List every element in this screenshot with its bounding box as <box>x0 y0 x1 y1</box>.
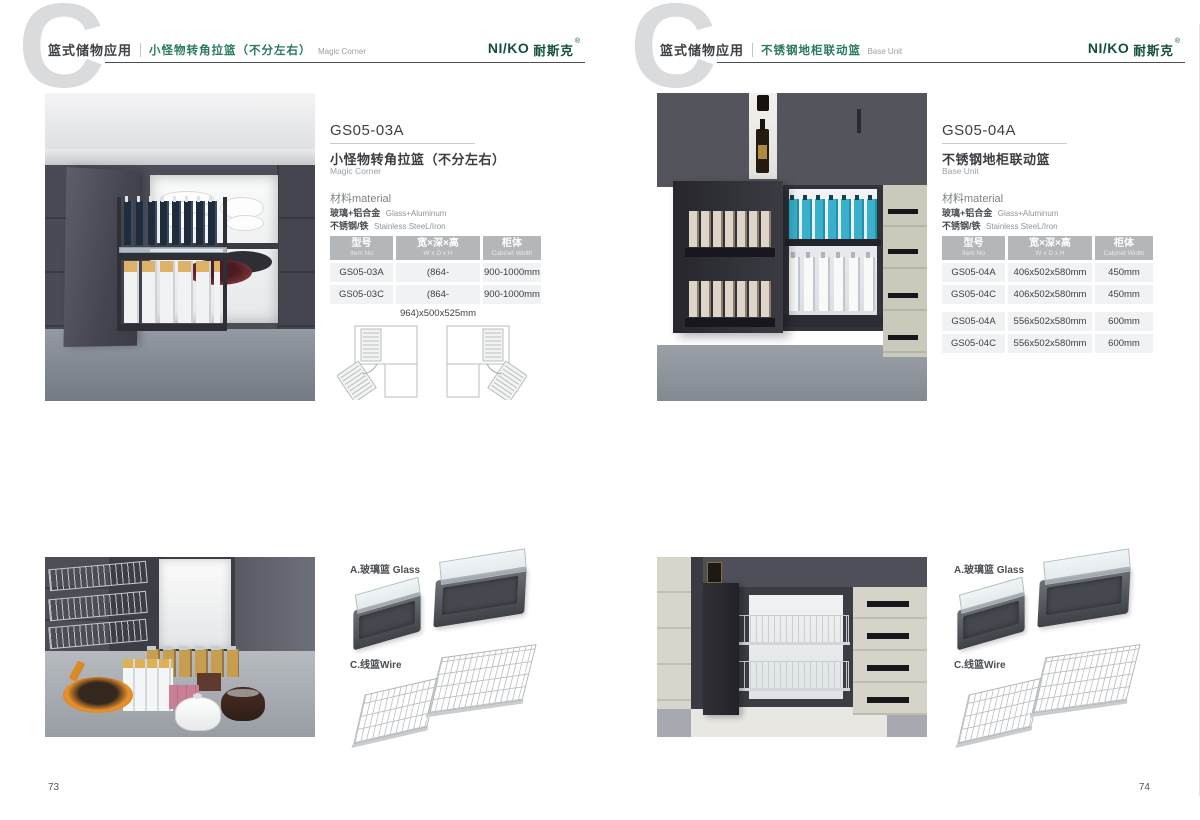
wire-basket-label: C.线篮Wire <box>954 656 1006 671</box>
right-drawer-stack <box>277 165 315 331</box>
package-row <box>689 211 771 247</box>
wire-basket-large <box>427 644 536 714</box>
header-rule <box>717 62 1185 63</box>
page-header: 篮式储物应用 小怪物转角拉篮（不分左右） Magic Corner <box>48 40 366 59</box>
drawer-handle <box>888 335 918 340</box>
spec-table-header: 型号 Item No 宽×深×高 W x D x H 柜体 Cabinet Wi… <box>942 236 1153 260</box>
basket-shelf <box>785 239 881 246</box>
product-code: GS05-04A <box>942 122 1016 139</box>
header-divider <box>752 43 753 57</box>
table-cell: 450mm <box>1095 263 1153 282</box>
kitchen-wall <box>45 93 315 151</box>
brand-logo-latin: NI/KO <box>1088 40 1129 56</box>
header-category: 篮式储物应用 <box>660 40 744 59</box>
table-cell: 600mm <box>1095 334 1153 353</box>
pullout-basket-unit <box>117 197 227 331</box>
col-header-item-no: 型号 Item No <box>330 236 393 260</box>
wire-basket-label: C.线篮Wire <box>350 656 402 671</box>
countertop <box>45 149 315 165</box>
carton-row <box>124 261 220 323</box>
wire-basket-small <box>353 678 439 745</box>
glass-basket-large <box>1037 566 1130 627</box>
open-cabinet-door <box>673 181 783 333</box>
saucer <box>226 215 264 231</box>
page-number: 73 <box>48 782 59 793</box>
corner-diagram-right <box>443 322 527 400</box>
stone-drawer-stack <box>883 185 927 357</box>
brand-plate <box>707 562 722 583</box>
registered-mark: ® <box>1175 38 1180 45</box>
spec-table: 型号 Item No 宽×深×高 W x D x H 柜体 Cabinet Wi… <box>942 236 1153 353</box>
material-cn: 不锈钢/铁 <box>330 221 369 231</box>
header-category: 篮式储物应用 <box>48 40 132 59</box>
basket-mid-rail <box>119 253 225 260</box>
stone-column <box>657 557 691 709</box>
table-cell: GS05-03A <box>330 263 393 282</box>
material-line: 玻璃+铝合金 Glass+Aluminum <box>330 206 446 219</box>
table-cell: 900-1000mm <box>483 285 541 304</box>
table-row: GS05-04C 406x502x580mm 450mm <box>942 285 1153 304</box>
catalog-page-left: C 篮式储物应用 小怪物转角拉篮（不分左右） Magic Corner NI/K… <box>0 0 600 820</box>
glass-basket-small <box>957 592 1024 651</box>
header-subtitle-en: Base Unit <box>867 47 902 56</box>
table-row: GS05-03C (864-964)x500x525mm 900-1000mm <box>330 285 541 304</box>
material-cn: 玻璃+铝合金 <box>942 208 992 218</box>
col-header-cabinet-width: 柜体 Cabinet Width <box>1095 236 1153 260</box>
header-subtitle: 小怪物转角拉篮（不分左右） Magic Corner <box>149 41 366 59</box>
col-header-cabinet-width: 柜体 Cabinet Width <box>483 236 541 260</box>
brand-logo-latin: NI/KO <box>488 40 529 56</box>
dark-column <box>691 557 703 709</box>
material-label: 材料material <box>330 190 391 206</box>
upper-cabinets <box>657 93 927 187</box>
product-name-en: Base Unit <box>942 166 979 176</box>
page-number: 74 <box>1139 782 1150 793</box>
table-cell: (864-964)x500x525mm <box>396 263 480 282</box>
black-jar <box>757 95 769 111</box>
product-code: GS05-03A <box>330 122 404 139</box>
table-cell: 406x502x580mm <box>1008 263 1092 282</box>
drawer-handle <box>867 665 909 671</box>
package-row <box>689 281 771 317</box>
door-rack <box>685 279 775 327</box>
brown-box <box>197 673 221 691</box>
product-code-underline <box>330 143 475 144</box>
bottle-row <box>124 201 220 245</box>
cabinet-handle <box>857 109 861 133</box>
material-en: Stainless SteeL/Iron <box>374 222 446 231</box>
material-cn: 不锈钢/铁 <box>942 221 981 231</box>
col-header-wdh: 宽×深×高 W x D x H <box>396 236 480 260</box>
col-header-wdh: 宽×深×高 W x D x H <box>1008 236 1092 260</box>
dark-pot <box>221 687 265 721</box>
drawer-handle <box>867 601 909 607</box>
table-row: GS05-04A 556x502x580mm 600mm <box>942 312 1153 331</box>
material-line: 不锈钢/铁 Stainless SteeL/Iron <box>942 219 1058 232</box>
open-cabinet-door <box>703 583 739 715</box>
header-subtitle-en: Magic Corner <box>318 47 366 56</box>
brand-logo-chinese: 耐斯克 <box>1133 40 1174 59</box>
basket-rail-right <box>223 197 227 331</box>
product-photo-base-unit <box>657 93 927 401</box>
table-cell: GS05-03C <box>330 285 393 304</box>
header-subtitle: 不锈钢地柜联动篮 Base Unit <box>761 41 902 59</box>
header-rule <box>105 62 585 63</box>
page-header: 篮式储物应用 不锈钢地柜联动篮 Base Unit <box>660 40 902 59</box>
table-cell: GS05-04C <box>942 334 1005 353</box>
clear-bottle-row <box>789 257 877 311</box>
wire-basket-large <box>1031 644 1140 714</box>
table-cell: GS05-04A <box>942 312 1005 331</box>
registered-mark: ® <box>575 38 580 45</box>
drawer-handle <box>867 697 909 703</box>
col-header-item-no: 型号 Item No <box>942 236 1005 260</box>
material-en: Stainless SteeL/Iron <box>986 222 1058 231</box>
whisky-bottle <box>756 129 769 173</box>
spec-table: 型号 Item No 宽×深×高 W x D x H 柜体 Cabinet Wi… <box>330 236 541 304</box>
table-cell: 406x502x580mm <box>1008 285 1092 304</box>
corner-diagram-left <box>337 322 421 400</box>
cabinet-interior <box>159 559 231 649</box>
product-name-en: Magic Corner <box>330 166 381 176</box>
glass-basket-large <box>433 566 526 627</box>
table-cell: 900-1000mm <box>483 263 541 282</box>
glass-basket-label: A.玻璃篮 Glass <box>350 561 420 576</box>
glass-basket-label: A.玻璃篮 Glass <box>954 561 1024 576</box>
table-cell: 556x502x580mm <box>1008 334 1092 353</box>
table-cell: 450mm <box>1095 285 1153 304</box>
table-cell: GS05-04C <box>942 285 1005 304</box>
table-cell: 556x502x580mm <box>1008 312 1092 331</box>
white-pot <box>175 697 221 731</box>
rack-rail <box>685 318 775 327</box>
material-en: Glass+Aluminum <box>998 209 1059 218</box>
brand-logo: NI/KO 耐斯克 ® <box>488 40 580 59</box>
product-photo-magic-corner <box>45 93 315 401</box>
basket-bottom-rail <box>117 324 227 331</box>
table-cell: GS05-04A <box>942 263 1005 282</box>
glass-basket-small <box>353 592 420 651</box>
drawer-handle <box>888 249 918 254</box>
basket-rail-left <box>117 197 121 331</box>
material-label: 材料material <box>942 190 1003 206</box>
table-row: GS05-04A 406x502x580mm 450mm <box>942 263 1153 282</box>
table-row: GS05-04C 556x502x580mm 600mm <box>942 334 1153 353</box>
wire-basket-small <box>957 678 1043 745</box>
drawer-handle <box>888 209 918 214</box>
stone-drawer-stack <box>853 587 927 715</box>
spec-table-header: 型号 Item No 宽×深×高 W x D x H 柜体 Cabinet Wi… <box>330 236 541 260</box>
brand-logo: NI/KO 耐斯克 ® <box>1088 40 1180 59</box>
catalog-page-right: C 篮式储物应用 不锈钢地柜联动篮 Base Unit NI/KO 耐斯克 ® <box>612 0 1200 820</box>
header-divider <box>140 43 141 57</box>
lifestyle-photo-base-unit <box>657 557 927 737</box>
material-en: Glass+Aluminum <box>386 209 447 218</box>
blue-bottle-row <box>789 199 877 239</box>
orange-pan <box>63 677 133 713</box>
installation-diagrams <box>337 322 527 400</box>
lifestyle-photo-wire-corner <box>45 557 315 737</box>
brand-logo-chinese: 耐斯克 <box>533 40 574 59</box>
header-subtitle-cn: 不锈钢地柜联动篮 <box>761 45 861 57</box>
table-cell: 600mm <box>1095 312 1153 331</box>
rack-rail <box>685 248 775 257</box>
basket-base <box>783 315 883 327</box>
product-code-underline <box>942 143 1067 144</box>
table-cell: (864-964)x500x525mm <box>396 285 480 304</box>
milk-cartons <box>123 659 173 711</box>
header-subtitle-cn: 小怪物转角拉篮（不分左右） <box>149 45 312 57</box>
drawer-handle <box>888 293 918 298</box>
material-cn: 玻璃+铝合金 <box>330 208 380 218</box>
door-rack <box>685 209 775 257</box>
material-line: 玻璃+铝合金 Glass+Aluminum <box>942 206 1058 219</box>
table-row: GS05-03A (864-964)x500x525mm 900-1000mm <box>330 263 541 282</box>
material-line: 不锈钢/铁 Stainless SteeL/Iron <box>330 219 446 232</box>
drawer-handle <box>867 633 909 639</box>
